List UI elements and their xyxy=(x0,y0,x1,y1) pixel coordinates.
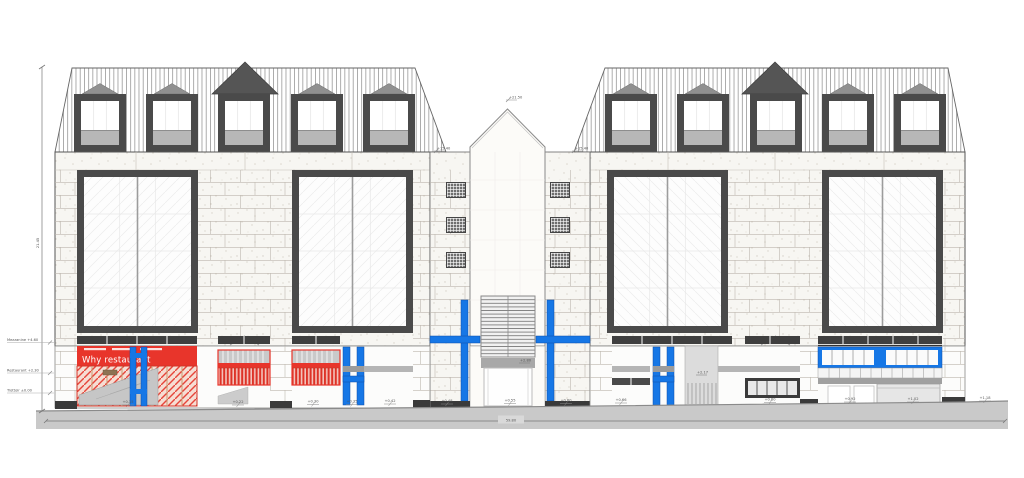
ground-mark: +0.15 xyxy=(122,400,133,404)
gf-pier xyxy=(942,346,965,397)
service-door xyxy=(854,386,874,405)
ground-mark: +0.66 xyxy=(615,398,627,402)
gray-band xyxy=(818,378,942,384)
ground-mark: +1.18 xyxy=(979,396,991,400)
vertical-dimension: 21.45 xyxy=(36,65,45,413)
central-section xyxy=(430,109,590,408)
clerestory-band xyxy=(818,368,942,378)
ground-mark: +0.48 xyxy=(441,399,453,403)
gf-pier xyxy=(55,346,77,401)
plinth xyxy=(55,401,77,409)
ground-mark: +0.60 xyxy=(560,399,572,403)
gf-pier xyxy=(413,346,430,400)
transom xyxy=(218,350,270,363)
bench xyxy=(103,370,117,375)
plinth xyxy=(413,400,430,408)
gray-band xyxy=(364,366,413,372)
recessed-entry xyxy=(685,346,718,406)
blue-window-band xyxy=(818,346,942,369)
total-width-label: 59.80 xyxy=(506,419,517,423)
ground-mark: +0.92 xyxy=(844,397,855,401)
awning-header xyxy=(292,363,340,368)
ground-mark: +0.22 xyxy=(232,400,243,404)
tower-level: +15.40 xyxy=(575,147,589,151)
ground-mark: +1.02 xyxy=(907,397,918,401)
tower-level: +15.40 xyxy=(437,147,451,151)
awning xyxy=(218,368,270,385)
left-block xyxy=(55,62,446,346)
ground-mark: +0.42 xyxy=(384,399,395,403)
spandrel-band-dark xyxy=(612,336,942,344)
transom xyxy=(292,350,340,363)
total-height-label: 21.45 xyxy=(36,238,40,248)
shopfront-awning-b xyxy=(292,350,340,385)
awning xyxy=(292,368,340,385)
awning-header xyxy=(218,363,270,368)
elevation-canvas: Why restaurant xyxy=(0,0,1024,478)
peak-flag: +21.50 xyxy=(506,96,523,103)
entry-level: +2.17 xyxy=(697,371,708,375)
entry-flag: +2.17 xyxy=(696,371,708,376)
gf-pier xyxy=(800,346,818,399)
lintel-level: +2.80 xyxy=(520,359,532,363)
sign-strip-text-chip xyxy=(84,348,106,350)
level-label: Restaurant +2.30 xyxy=(7,369,40,373)
dark-window-band xyxy=(745,378,800,398)
level-labels-left: Mezzanine +4.60 Restaurant +2.30 Trottoi… xyxy=(6,338,54,395)
level-label: Trottoir ±0.00 xyxy=(6,389,33,393)
level-label: Mezzanine +4.60 xyxy=(7,338,39,342)
left-ground-floor: Why restaurant xyxy=(55,336,430,409)
peak-level: +21.50 xyxy=(509,96,523,100)
ground-mark: +0.80 xyxy=(764,398,776,402)
ground-mark: +0.55 xyxy=(504,399,515,403)
ground-mark: +0.30 xyxy=(307,400,319,404)
gf-pier xyxy=(270,346,292,401)
gf-pier xyxy=(590,346,612,401)
gray-band xyxy=(612,366,650,372)
ground-mark: +0.35 xyxy=(346,400,357,404)
door-lintel-flag: +2.80 xyxy=(519,359,532,364)
plinth xyxy=(270,401,292,408)
restaurant-front: Why restaurant xyxy=(77,346,197,406)
right-block xyxy=(574,62,965,346)
gray-band xyxy=(718,366,800,372)
elevation-drawing: Why restaurant xyxy=(0,0,1024,478)
